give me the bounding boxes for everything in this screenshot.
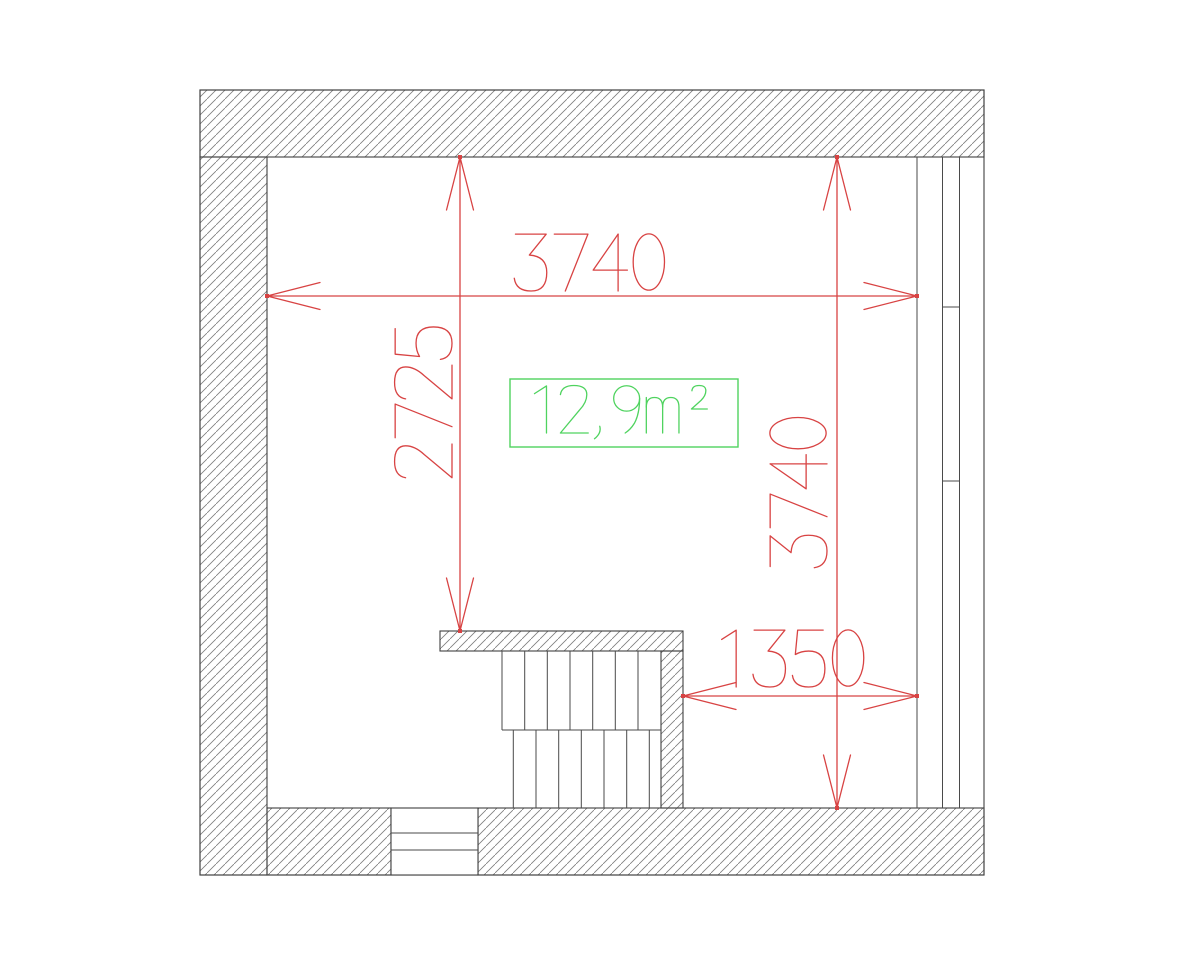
dim-endpoint: [915, 294, 919, 298]
door-opening-steps: [391, 808, 478, 875]
dim-endpoint: [458, 629, 462, 633]
dim-endpoint: [458, 155, 462, 159]
dim-text-left: [395, 327, 452, 478]
area-label-box: [510, 379, 738, 447]
wall-top: [200, 90, 984, 157]
outer-wall-boundary: [200, 90, 984, 875]
wall-left: [200, 157, 267, 875]
dim-text-top: [514, 234, 664, 291]
floor-plan-page: [0, 0, 1200, 960]
dim-endpoint: [681, 694, 685, 698]
stair-landing-wall: [440, 631, 683, 651]
area-label-text: [534, 385, 707, 438]
staircase: [502, 651, 661, 808]
stair-side-wall: [661, 651, 683, 808]
dim-endpoint: [915, 694, 919, 698]
walls: [200, 90, 984, 875]
dim-top-3740: [265, 283, 919, 310]
dim-right-3740: [824, 155, 851, 810]
wall-bottom-left: [267, 808, 391, 875]
wall-bottom-right: [478, 808, 984, 875]
dim-text-right: [770, 418, 827, 568]
dimension-lines: [265, 155, 919, 810]
dim-endpoint: [835, 806, 839, 810]
dim-endpoint: [265, 294, 269, 298]
dim-text-bottom: [722, 630, 864, 687]
floor-plan-drawing: [0, 0, 1200, 960]
dim-left-2725: [447, 155, 474, 633]
dim-endpoint: [835, 155, 839, 159]
dim-bottom-1350: [681, 683, 919, 710]
area-label: [510, 379, 738, 447]
door-opening: [391, 808, 478, 875]
window-right: [917, 157, 960, 808]
